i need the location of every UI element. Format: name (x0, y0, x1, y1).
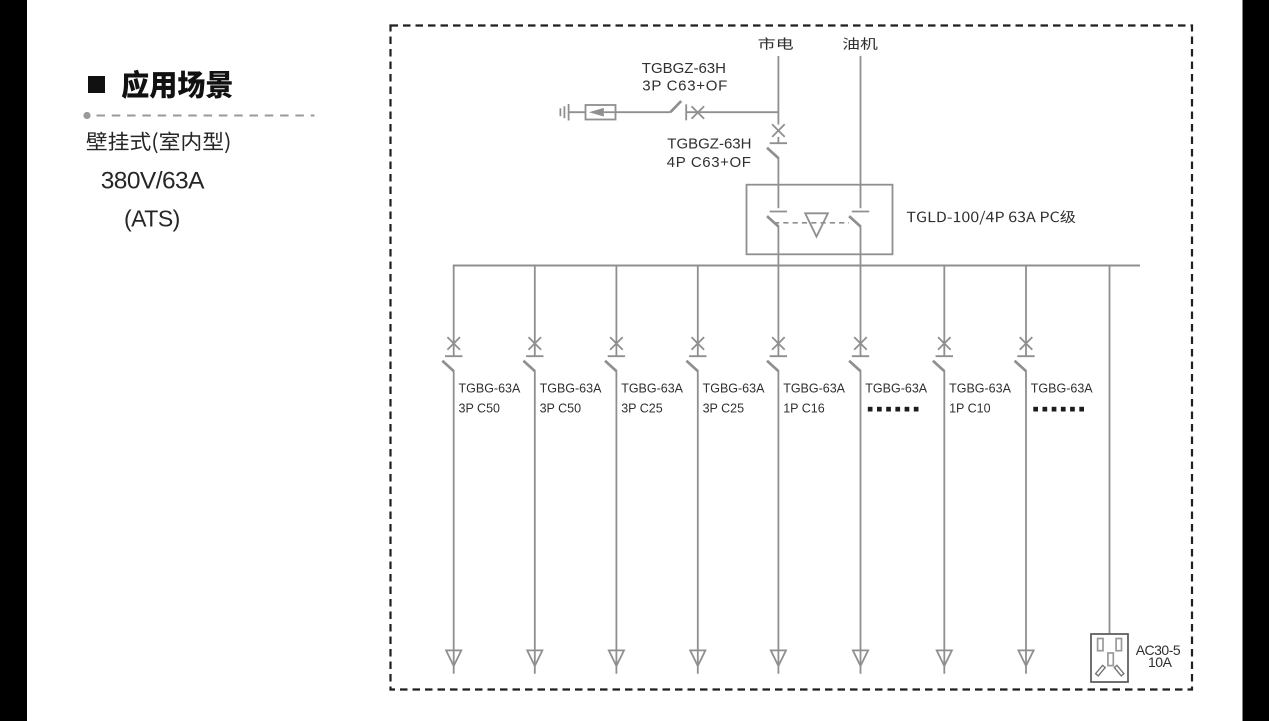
svg-text:TGBG-63A: TGBG-63A (1031, 381, 1093, 395)
svg-text:(ATS): (ATS) (124, 206, 180, 232)
svg-text:TGBG-63A: TGBG-63A (703, 381, 765, 395)
svg-text:1P C16: 1P C16 (783, 402, 825, 416)
svg-text:10A: 10A (1148, 654, 1173, 670)
svg-text:3P C63+OF: 3P C63+OF (642, 77, 728, 94)
svg-text:1P C10: 1P C10 (949, 402, 991, 416)
svg-text:TGBGZ-63H: TGBGZ-63H (667, 135, 751, 152)
svg-text:TGBG-63A: TGBG-63A (949, 381, 1011, 395)
svg-text:380V/63A: 380V/63A (101, 168, 205, 195)
svg-text:3P C50: 3P C50 (459, 402, 501, 416)
svg-text:TGBGZ-63H: TGBGZ-63H (642, 60, 726, 77)
svg-text:TGBG-63A: TGBG-63A (783, 381, 845, 395)
svg-text:4P C63+OF: 4P C63+OF (667, 154, 752, 171)
svg-text:TGBG-63A: TGBG-63A (540, 381, 602, 395)
svg-text:3P C25: 3P C25 (621, 402, 663, 416)
svg-text:3P C50: 3P C50 (540, 402, 582, 416)
svg-text:TGBG-63A: TGBG-63A (865, 381, 927, 395)
svg-text:TGBG-63A: TGBG-63A (621, 381, 683, 395)
svg-text:3P C25: 3P C25 (703, 402, 745, 416)
svg-text:TGBG-63A: TGBG-63A (459, 381, 521, 395)
